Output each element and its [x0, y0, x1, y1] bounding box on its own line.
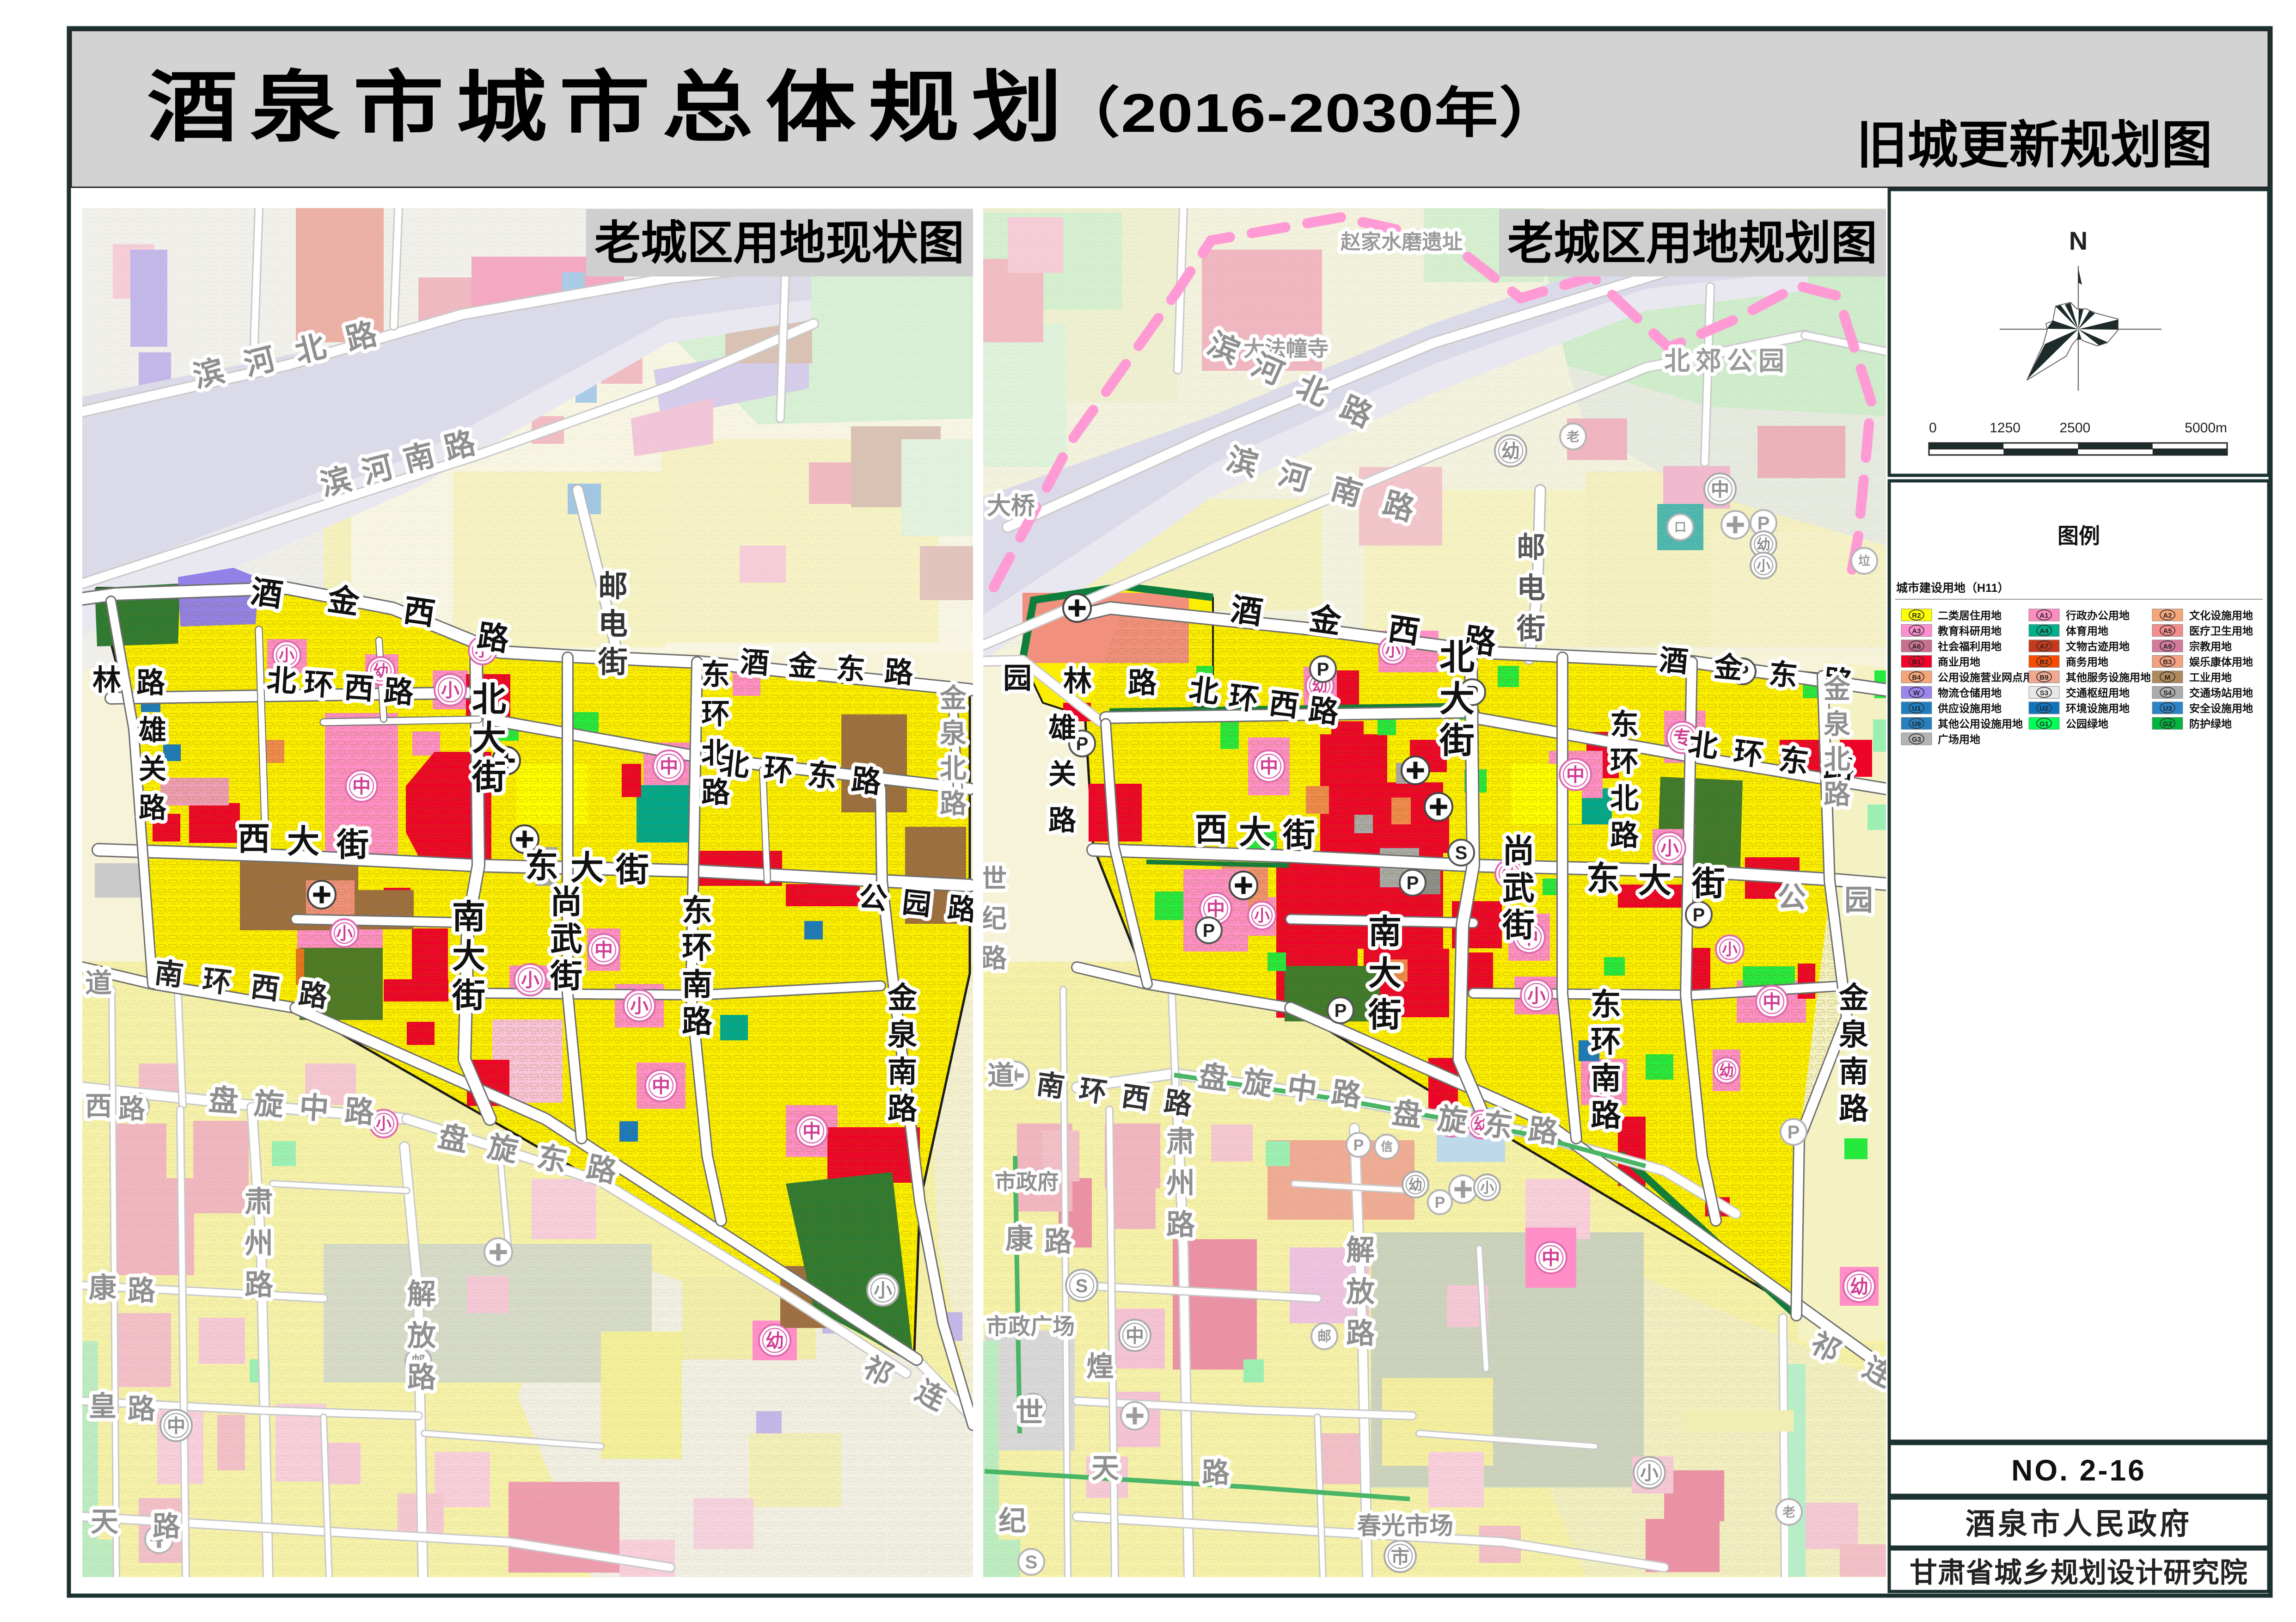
svg-text:中: 中	[352, 776, 371, 797]
svg-text:中: 中	[1763, 992, 1781, 1012]
svg-text:旋: 旋	[1241, 1065, 1274, 1102]
svg-text:A3: A3	[1912, 627, 1921, 635]
svg-text:0: 0	[1929, 420, 1937, 436]
svg-text:东: 东	[1777, 743, 1810, 779]
svg-text:交通枢纽用地: 交通枢纽用地	[2066, 687, 2130, 699]
svg-text:西: 西	[85, 1091, 112, 1121]
svg-text:小: 小	[336, 924, 353, 943]
svg-text:大: 大	[472, 719, 506, 757]
svg-text:雄: 雄	[139, 715, 166, 746]
svg-text:泉: 泉	[1824, 709, 1850, 739]
svg-text:安全设施用地: 安全设施用地	[2189, 702, 2253, 714]
svg-text:大桥: 大桥	[987, 493, 1035, 520]
svg-text:街: 街	[471, 758, 506, 796]
svg-text:街: 街	[1282, 817, 1315, 853]
svg-text:酒: 酒	[1229, 592, 1265, 631]
svg-text:P: P	[1076, 734, 1089, 754]
svg-text:路: 路	[383, 674, 415, 709]
svg-text:路: 路	[1162, 1086, 1194, 1121]
svg-text:P: P	[1435, 1194, 1445, 1211]
svg-text:老: 老	[1782, 1505, 1795, 1519]
svg-text:南: 南	[452, 899, 485, 936]
svg-text:路: 路	[850, 763, 883, 799]
svg-text:天: 天	[1091, 1453, 1119, 1484]
svg-text:A4: A4	[2039, 627, 2049, 635]
svg-text:街: 街	[598, 645, 628, 679]
svg-text:小: 小	[1254, 907, 1270, 925]
svg-text:A5: A5	[2163, 627, 2172, 635]
svg-text:金: 金	[940, 683, 967, 713]
svg-text:B4: B4	[1912, 674, 1921, 682]
svg-text:路: 路	[1307, 693, 1341, 729]
svg-text:中: 中	[1126, 1326, 1144, 1346]
svg-text:S3: S3	[2040, 689, 2048, 697]
svg-text:其他公用设施用地: 其他公用设施用地	[1938, 718, 2023, 730]
svg-text:武: 武	[1502, 870, 1535, 906]
svg-text:电: 电	[1517, 572, 1545, 604]
svg-text:路: 路	[1128, 667, 1157, 699]
svg-text:中: 中	[298, 1090, 330, 1125]
svg-text:金: 金	[1307, 601, 1344, 640]
svg-text:泉: 泉	[1839, 1018, 1868, 1051]
svg-text:南: 南	[682, 967, 712, 1001]
svg-text:南: 南	[153, 957, 185, 992]
svg-text:北: 北	[940, 754, 967, 784]
svg-text:路: 路	[128, 1394, 156, 1425]
svg-text:东: 东	[1591, 987, 1621, 1021]
svg-text:世: 世	[981, 864, 1007, 893]
svg-text:幼: 幼	[1501, 441, 1520, 461]
svg-text:工业用地: 工业用地	[2189, 671, 2232, 683]
svg-text:金: 金	[887, 981, 918, 1014]
svg-text:路: 路	[245, 1269, 274, 1301]
svg-text:西: 西	[249, 971, 281, 1006]
svg-text:西: 西	[1120, 1081, 1151, 1115]
svg-text:环: 环	[762, 752, 795, 788]
svg-text:小: 小	[1722, 941, 1738, 958]
svg-text:中: 中	[167, 1416, 185, 1436]
svg-text:老城区用地规划图: 老城区用地规划图	[1507, 217, 1877, 269]
svg-text:环: 环	[201, 964, 233, 999]
svg-text:P: P	[1407, 873, 1419, 893]
svg-text:医疗卫生用地: 医疗卫生用地	[2189, 625, 2253, 637]
svg-text:环: 环	[1610, 746, 1639, 778]
svg-text:街: 街	[550, 958, 582, 994]
svg-text:路: 路	[1839, 1092, 1869, 1125]
svg-text:尚: 尚	[1502, 833, 1535, 869]
svg-text:P: P	[1353, 1137, 1364, 1154]
svg-text:小: 小	[441, 680, 459, 700]
svg-text:P: P	[1317, 659, 1329, 680]
svg-text:中: 中	[594, 940, 613, 960]
svg-text:林: 林	[92, 664, 121, 696]
svg-text:小: 小	[1660, 838, 1679, 859]
svg-text:北: 北	[718, 746, 751, 782]
svg-text:酒: 酒	[1658, 644, 1690, 678]
svg-text:幼: 幼	[1719, 1063, 1734, 1079]
svg-text:市: 市	[1391, 1547, 1409, 1567]
svg-text:小: 小	[1640, 1463, 1659, 1483]
svg-text:路: 路	[1202, 1457, 1230, 1488]
svg-text:盘: 盘	[435, 1119, 471, 1158]
svg-text:盘: 盘	[208, 1083, 239, 1118]
svg-text:泉: 泉	[888, 1018, 917, 1051]
svg-text:市政府: 市政府	[995, 1170, 1059, 1194]
svg-text:行政办公用地: 行政办公用地	[2065, 609, 2130, 621]
svg-text:南: 南	[1368, 914, 1402, 951]
svg-text:防护绿地: 防护绿地	[2189, 718, 2232, 730]
svg-text:S4: S4	[2163, 689, 2172, 697]
svg-text:公园绿地: 公园绿地	[2066, 718, 2108, 730]
svg-text:路: 路	[682, 1004, 713, 1038]
svg-text:金: 金	[325, 581, 362, 621]
svg-text:市政广场: 市政广场	[986, 1315, 1075, 1339]
svg-text:2500: 2500	[2060, 420, 2091, 436]
svg-text:西: 西	[238, 821, 270, 857]
svg-text:图例: 图例	[2057, 524, 2100, 548]
svg-text:南: 南	[1591, 1061, 1621, 1095]
svg-text:大: 大	[287, 823, 319, 860]
svg-text:园: 园	[1003, 663, 1032, 694]
svg-text:东: 东	[806, 757, 839, 793]
svg-text:东: 东	[835, 652, 866, 686]
svg-text:环: 环	[303, 667, 335, 702]
svg-text:金: 金	[787, 649, 819, 683]
svg-text:文化设施用地: 文化设施用地	[2189, 609, 2253, 621]
svg-text:盘: 盘	[1390, 1096, 1424, 1132]
svg-text:金: 金	[1712, 651, 1745, 685]
svg-text:酒泉市城市总体规划: 酒泉市城市总体规划	[147, 64, 1075, 151]
svg-text:园: 园	[1844, 885, 1873, 916]
svg-text:1250: 1250	[1990, 420, 2020, 436]
svg-text:路: 路	[1610, 820, 1639, 852]
svg-text:路: 路	[297, 978, 330, 1013]
svg-text:商务用地: 商务用地	[2066, 656, 2108, 668]
svg-text:路: 路	[1166, 1209, 1195, 1241]
svg-text:S: S	[1076, 1276, 1088, 1296]
svg-text:路: 路	[139, 793, 167, 823]
svg-text:中: 中	[1260, 756, 1278, 777]
svg-text:幼: 幼	[765, 1331, 784, 1351]
svg-text:街: 街	[1439, 721, 1475, 761]
svg-text:酒: 酒	[249, 574, 285, 614]
svg-text:雄: 雄	[1048, 713, 1076, 743]
svg-text:（2016-2030年）: （2016-2030年）	[1056, 83, 1564, 143]
svg-text:N: N	[2069, 226, 2088, 255]
svg-text:康: 康	[89, 1272, 116, 1303]
svg-text:金: 金	[1824, 674, 1851, 704]
svg-text:公: 公	[1777, 882, 1806, 914]
svg-text:尚: 尚	[550, 884, 582, 920]
svg-text:解: 解	[407, 1278, 436, 1310]
svg-text:小: 小	[376, 1115, 392, 1133]
svg-text:武: 武	[550, 921, 582, 957]
svg-text:北: 北	[472, 680, 506, 719]
svg-text:街: 街	[1368, 997, 1402, 1034]
svg-text:幼: 幼	[1757, 537, 1770, 553]
svg-text:街: 街	[1691, 866, 1725, 903]
svg-text:中: 中	[1542, 1248, 1560, 1268]
svg-text:北: 北	[266, 663, 298, 698]
svg-text:幼: 幼	[1408, 1178, 1422, 1193]
svg-text:社会福利用地: 社会福利用地	[1938, 640, 2002, 652]
svg-text:路: 路	[475, 619, 512, 658]
svg-text:邮: 邮	[598, 570, 628, 603]
svg-text:R2: R2	[1912, 612, 1921, 620]
svg-text:物流仓储用地: 物流仓储用地	[1938, 687, 2002, 699]
svg-text:老城区用地现状图: 老城区用地现状图	[594, 217, 964, 269]
svg-text:文物古迹用地: 文物古迹用地	[2066, 640, 2130, 652]
svg-text:中: 中	[802, 1121, 821, 1142]
svg-text:北: 北	[1686, 727, 1720, 763]
svg-text:西: 西	[343, 670, 375, 706]
svg-text:康: 康	[1005, 1223, 1033, 1254]
svg-text:东: 东	[1768, 658, 1799, 692]
svg-text:小: 小	[1527, 986, 1546, 1006]
svg-text:商业用地: 商业用地	[1938, 656, 1980, 668]
svg-text:公用设施营业网点用地: 公用设施营业网点用地	[1938, 671, 2044, 683]
svg-text:世: 世	[1016, 1397, 1043, 1428]
svg-text:小: 小	[630, 996, 649, 1016]
svg-text:路: 路	[1346, 1318, 1375, 1350]
svg-text:煌: 煌	[1086, 1351, 1114, 1382]
svg-text:路: 路	[1824, 780, 1851, 810]
svg-text:盘: 盘	[1196, 1059, 1230, 1096]
svg-text:路: 路	[118, 1094, 146, 1124]
svg-text:北郊公园: 北郊公园	[1664, 346, 1790, 375]
svg-text:大: 大	[1439, 680, 1475, 719]
svg-text:纪: 纪	[981, 904, 1007, 933]
svg-text:东: 东	[1610, 709, 1639, 741]
svg-text:路: 路	[981, 944, 1007, 973]
svg-text:环: 环	[701, 698, 730, 730]
svg-text:中: 中	[1285, 1070, 1319, 1107]
svg-text:街: 街	[615, 852, 649, 889]
svg-text:邮: 邮	[1317, 1329, 1331, 1345]
svg-text:中: 中	[1711, 479, 1729, 500]
svg-text:肃: 肃	[1166, 1126, 1195, 1158]
svg-text:P: P	[1693, 905, 1705, 925]
svg-text:中: 中	[1206, 899, 1225, 919]
svg-text:体育用地: 体育用地	[2066, 625, 2108, 637]
svg-text:小: 小	[1480, 1180, 1494, 1196]
svg-text:东: 东	[534, 1140, 570, 1178]
svg-text:环: 环	[682, 930, 712, 965]
svg-text:S: S	[1455, 843, 1468, 863]
svg-text:交通场站用地: 交通场站用地	[2189, 687, 2253, 699]
svg-text:旋: 旋	[1436, 1101, 1469, 1138]
svg-text:旧城更新规划图: 旧城更新规划图	[1856, 117, 2212, 174]
svg-text:路: 路	[128, 1275, 156, 1306]
svg-text:环: 环	[1591, 1024, 1621, 1058]
svg-text:道: 道	[987, 1061, 1014, 1091]
svg-text:肃: 肃	[245, 1186, 273, 1218]
svg-text:北: 北	[1824, 744, 1850, 774]
svg-text:大: 大	[452, 938, 485, 975]
svg-text:小: 小	[1757, 559, 1770, 574]
svg-text:U2: U2	[2039, 705, 2048, 713]
svg-text:甘肃省城乡规划设计研究院: 甘肃省城乡规划设计研究院	[1910, 1557, 2248, 1588]
svg-text:州: 州	[245, 1228, 273, 1260]
svg-text:街: 街	[336, 827, 369, 863]
svg-text:酒泉市人民政府: 酒泉市人民政府	[1965, 1507, 2192, 1541]
svg-text:G1: G1	[2039, 720, 2049, 728]
svg-text:U1: U1	[1912, 705, 1921, 713]
svg-text:放: 放	[1346, 1276, 1375, 1308]
svg-text:北: 北	[1439, 638, 1475, 677]
svg-text:南: 南	[1035, 1069, 1066, 1103]
svg-text:天: 天	[91, 1506, 118, 1537]
svg-text:金: 金	[1838, 981, 1869, 1014]
svg-text:幼: 幼	[1850, 1277, 1868, 1297]
svg-text:A7: A7	[2039, 643, 2048, 651]
svg-text:街: 街	[1502, 907, 1535, 943]
svg-text:供应设施用地: 供应设施用地	[1937, 702, 2002, 714]
svg-text:城市建设用地（H11）: 城市建设用地（H11）	[1896, 581, 2009, 595]
svg-text:北: 北	[1610, 783, 1639, 815]
svg-text:垃: 垃	[1858, 554, 1870, 568]
svg-text:小: 小	[521, 970, 539, 990]
svg-text:M: M	[2165, 674, 2171, 682]
svg-text:旋: 旋	[253, 1087, 285, 1122]
svg-text:路: 路	[1591, 1098, 1622, 1132]
svg-text:环境设施用地: 环境设施用地	[2066, 702, 2130, 714]
svg-text:中: 中	[660, 756, 678, 777]
svg-text:皇: 皇	[89, 1391, 116, 1422]
svg-text:公: 公	[857, 881, 889, 915]
svg-text:旋: 旋	[485, 1130, 520, 1168]
svg-text:西: 西	[1267, 686, 1300, 723]
svg-text:环: 环	[1077, 1074, 1109, 1109]
svg-text:宗教用地: 宗教用地	[2189, 640, 2232, 652]
svg-text:西: 西	[1386, 611, 1422, 651]
svg-text:P: P	[1788, 1122, 1800, 1143]
svg-text:B9: B9	[2039, 674, 2048, 682]
svg-text:A9: A9	[2163, 643, 2172, 651]
svg-text:娱乐康体用地: 娱乐康体用地	[2189, 656, 2253, 668]
svg-text:其他服务设施用地: 其他服务设施用地	[2066, 671, 2151, 683]
svg-text:东: 东	[701, 659, 730, 691]
svg-text:酒: 酒	[739, 646, 770, 680]
svg-text:大: 大	[1368, 955, 1402, 992]
svg-text:园: 园	[901, 886, 933, 921]
svg-text:大: 大	[1239, 814, 1271, 850]
svg-text:P: P	[1203, 921, 1215, 941]
svg-text:信: 信	[1381, 1140, 1393, 1154]
svg-text:泉: 泉	[940, 719, 967, 749]
svg-text:纪: 纪	[998, 1505, 1026, 1536]
svg-text:州: 州	[1166, 1167, 1195, 1199]
svg-text:关: 关	[1048, 759, 1076, 790]
svg-text:路: 路	[940, 789, 967, 819]
svg-text:口: 口	[1674, 520, 1686, 534]
svg-text:P: P	[1335, 1001, 1347, 1021]
svg-text:路: 路	[1526, 1112, 1560, 1149]
svg-text:中: 中	[652, 1076, 670, 1096]
svg-text:北: 北	[1187, 672, 1220, 709]
svg-text:小: 小	[874, 1280, 892, 1301]
svg-text:路: 路	[343, 1094, 376, 1129]
svg-text:G3: G3	[1912, 736, 1921, 743]
svg-text:教育科研用地: 教育科研用地	[1938, 625, 2002, 637]
svg-text:赵家水磨遗址: 赵家水磨遗址	[1341, 231, 1463, 253]
svg-text:电: 电	[598, 608, 628, 641]
svg-text:路: 路	[883, 656, 915, 689]
svg-text:A1: A1	[2039, 612, 2048, 620]
svg-text:南: 南	[888, 1055, 917, 1088]
svg-text:老: 老	[1567, 430, 1580, 444]
svg-text:U3: U3	[2163, 705, 2172, 713]
svg-text:广场用地: 广场用地	[1938, 733, 1980, 745]
svg-text:邮: 邮	[1517, 532, 1545, 564]
svg-text:街: 街	[1516, 613, 1545, 645]
svg-text:环: 环	[1732, 735, 1765, 772]
svg-text:路: 路	[153, 1511, 181, 1542]
svg-text:NO. 2-16: NO. 2-16	[2011, 1454, 2146, 1487]
svg-text:西: 西	[401, 593, 437, 632]
svg-text:春光市场: 春光市场	[1357, 1513, 1453, 1540]
svg-text:路: 路	[1044, 1226, 1072, 1257]
svg-text:东: 东	[682, 893, 712, 928]
svg-text:大: 大	[570, 850, 604, 887]
svg-text:小: 小	[279, 647, 294, 664]
svg-text:U9: U9	[1912, 720, 1921, 728]
svg-text:解: 解	[1346, 1235, 1375, 1266]
svg-text:东: 东	[1481, 1107, 1514, 1143]
svg-text:路: 路	[1048, 805, 1077, 836]
svg-text:A6: A6	[1912, 643, 1921, 651]
svg-text:林: 林	[1063, 665, 1092, 697]
svg-text:G2: G2	[2163, 720, 2172, 728]
svg-text:中: 中	[1566, 765, 1585, 785]
svg-text:S: S	[1025, 1552, 1038, 1573]
svg-text:西: 西	[1195, 811, 1227, 848]
svg-text:东: 东	[525, 848, 558, 885]
svg-text:路: 路	[1329, 1076, 1364, 1113]
svg-text:W: W	[1913, 689, 1920, 697]
svg-text:A2: A2	[2163, 612, 2172, 620]
svg-text:二类居住用地: 二类居住用地	[1938, 609, 2002, 621]
svg-text:路: 路	[407, 1362, 436, 1394]
svg-text:路: 路	[136, 667, 165, 699]
svg-text:B3: B3	[2163, 658, 2172, 666]
svg-text:道: 道	[85, 968, 112, 998]
svg-text:环: 环	[1227, 680, 1260, 716]
svg-text:B1: B1	[1912, 658, 1921, 666]
svg-text:东: 东	[1586, 860, 1620, 897]
svg-text:路: 路	[701, 777, 730, 809]
svg-text:关: 关	[139, 754, 166, 785]
svg-text:南: 南	[1839, 1055, 1868, 1088]
svg-text:大: 大	[1638, 863, 1671, 900]
svg-text:B2: B2	[2039, 658, 2048, 666]
svg-text:放: 放	[407, 1320, 436, 1352]
svg-text:5000m: 5000m	[2185, 420, 2227, 436]
svg-text:路: 路	[888, 1092, 918, 1125]
svg-text:街: 街	[452, 977, 485, 1014]
